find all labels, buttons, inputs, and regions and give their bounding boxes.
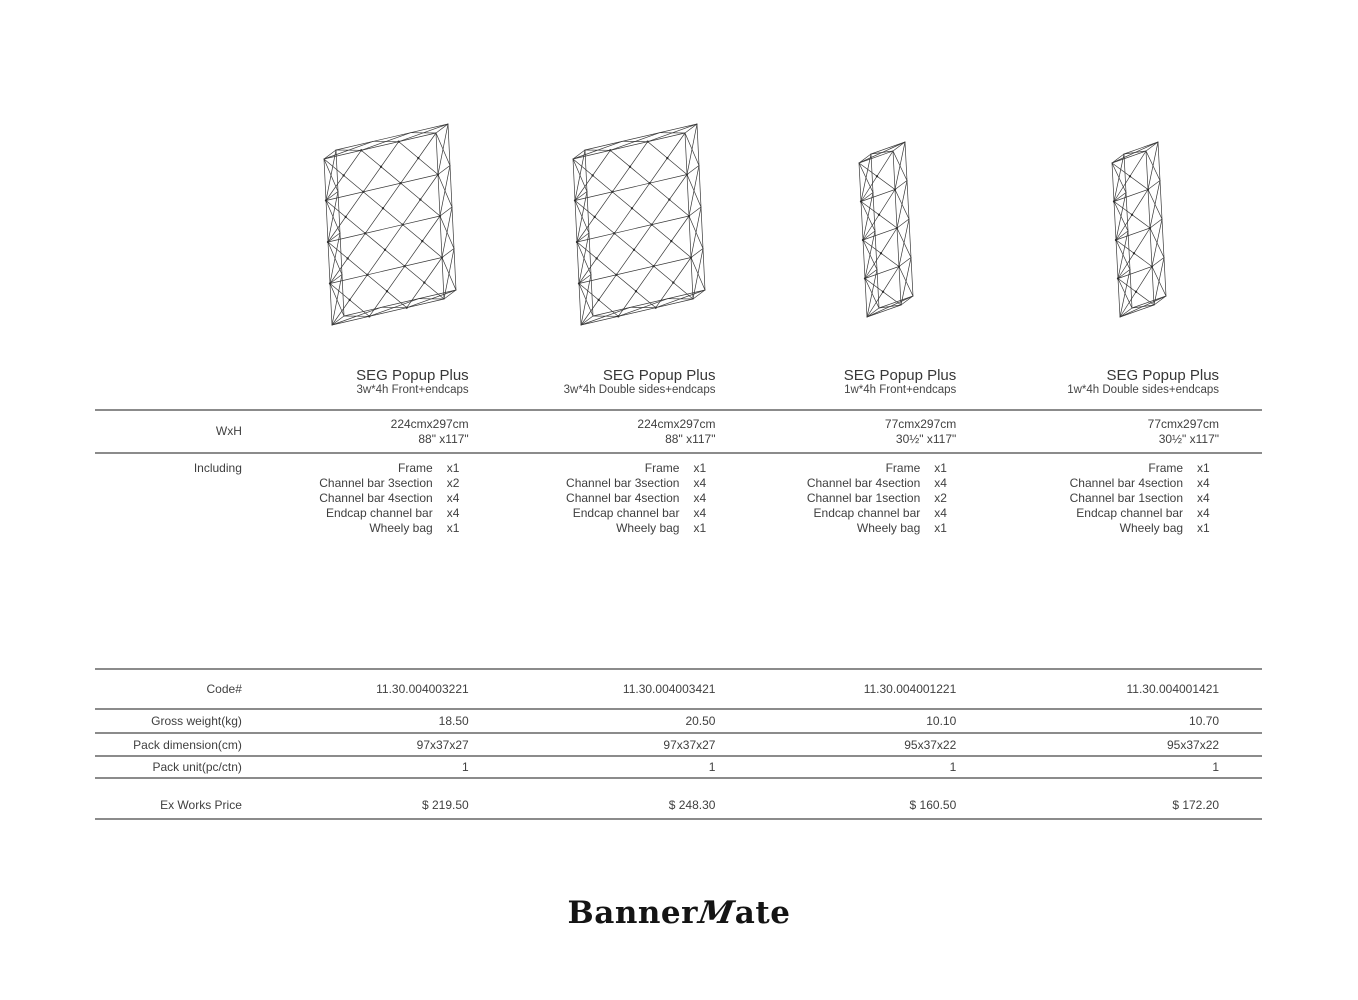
- size-in-value: 88" x117": [469, 432, 716, 447]
- including-item-qty: x4: [1197, 476, 1219, 491]
- including-item-qty: x1: [447, 461, 469, 476]
- including-item: Wheely bagx1: [956, 521, 1219, 536]
- pack-unit-value: 1: [715, 757, 956, 777]
- including-item: Endcap channel barx4: [469, 506, 716, 521]
- including-item-qty: x4: [447, 506, 469, 521]
- including-item-name: Channel bar 4section: [469, 491, 680, 506]
- including-item-qty: x2: [934, 491, 956, 506]
- including-item: Channel bar 4sectionx4: [956, 476, 1219, 491]
- including-list-1: Framex1 Channel bar 3sectionx2 Channel b…: [242, 454, 469, 668]
- including-item: Wheely bagx1: [715, 521, 956, 536]
- including-item: Channel bar 4sectionx4: [242, 491, 469, 506]
- including-item: Framex1: [956, 461, 1219, 476]
- size-values-3: 77cmx297cm 30½" x117": [715, 411, 956, 452]
- product-title: SEG Popup Plus: [469, 368, 716, 384]
- gross-weight-value: 20.50: [469, 710, 716, 732]
- gross-weight-value: 10.70: [956, 710, 1219, 732]
- including-item-qty: x4: [934, 476, 956, 491]
- size-cm-value: 77cmx297cm: [956, 417, 1219, 432]
- size-cm-value: 77cmx297cm: [715, 417, 956, 432]
- frame-drawing-1: [321, 123, 459, 333]
- including-list-4: Framex1 Channel bar 4sectionx4 Channel b…: [956, 454, 1219, 668]
- including-item: Endcap channel barx4: [956, 506, 1219, 521]
- frame-drawing-3: [854, 131, 918, 325]
- including-item-qty: x1: [693, 521, 715, 536]
- code-value: 11.30.004003221: [242, 670, 469, 708]
- row-pack-dimension: Pack dimension(cm) 97x37x27 97x37x27 95x…: [95, 734, 1262, 755]
- frame-drawing-4: [1107, 131, 1171, 325]
- including-item-name: Channel bar 1section: [956, 491, 1183, 506]
- including-item: Framex1: [469, 461, 716, 476]
- including-item-name: Wheely bag: [469, 521, 680, 536]
- including-item-name: Frame: [715, 461, 920, 476]
- including-item-name: Channel bar 3section: [469, 476, 680, 491]
- product-subtitle: 3w*4h Front+endcaps: [242, 384, 469, 397]
- including-item-name: Endcap channel bar: [715, 506, 920, 521]
- row-label-pack-dimension: Pack dimension(cm): [95, 734, 242, 755]
- including-item-name: Endcap channel bar: [469, 506, 680, 521]
- logo-text-suffix: ate: [735, 895, 791, 931]
- including-item-qty: x4: [447, 491, 469, 506]
- logo-stylized-m: M: [696, 895, 737, 931]
- pack-dimension-value: 95x37x22: [956, 734, 1219, 755]
- including-item-qty: x4: [693, 491, 715, 506]
- row-label-code: Code#: [95, 670, 242, 708]
- including-item: Endcap channel barx4: [715, 506, 956, 521]
- row-label-gross-weight: Gross weight(kg): [95, 710, 242, 732]
- pack-unit-value: 1: [956, 757, 1219, 777]
- including-item-qty: x1: [1197, 461, 1219, 476]
- size-in-value: 88" x117": [242, 432, 469, 447]
- including-item: Channel bar 1sectionx4: [956, 491, 1219, 506]
- including-item-qty: x4: [1197, 491, 1219, 506]
- size-in-value: 30½" x117": [715, 432, 956, 447]
- pack-unit-value: 1: [469, 757, 716, 777]
- including-item: Channel bar 3sectionx4: [469, 476, 716, 491]
- divider-rule: [95, 818, 1262, 820]
- including-item: Channel bar 4sectionx4: [469, 491, 716, 506]
- including-item-name: Channel bar 4section: [242, 491, 433, 506]
- row-code: Code# 11.30.004003221 11.30.004003421 11…: [95, 670, 1262, 708]
- product-title-block-4: SEG Popup Plus 1w*4h Double sides+endcap…: [956, 368, 1219, 397]
- pack-unit-value: 1: [242, 757, 469, 777]
- row-label-price: Ex Works Price: [95, 779, 242, 818]
- size-values-4: 77cmx297cm 30½" x117": [956, 411, 1219, 452]
- price-value: $ 219.50: [242, 779, 469, 818]
- product-title: SEG Popup Plus: [715, 368, 956, 384]
- product-title-block-3: SEG Popup Plus 1w*4h Front+endcaps: [715, 368, 956, 397]
- size-cm-value: 224cmx297cm: [242, 417, 469, 432]
- pack-dimension-value: 97x37x27: [469, 734, 716, 755]
- pack-dimension-value: 95x37x22: [715, 734, 956, 755]
- including-item-qty: x1: [447, 521, 469, 536]
- including-item: Framex1: [242, 461, 469, 476]
- including-item: Wheely bagx1: [469, 521, 716, 536]
- including-item-name: Frame: [956, 461, 1183, 476]
- title-spacer: [95, 368, 242, 397]
- spec-sheet-page: SEG Popup Plus 3w*4h Front+endcaps SEG P…: [0, 0, 1358, 1000]
- row-pack-unit: Pack unit(pc/ctn) 1 1 1 1: [95, 757, 1262, 777]
- including-item-qty: x4: [693, 506, 715, 521]
- price-value: $ 172.20: [956, 779, 1219, 818]
- product-title: SEG Popup Plus: [242, 368, 469, 384]
- product-subtitle: 3w*4h Double sides+endcaps: [469, 384, 716, 397]
- including-item-qty: x2: [447, 476, 469, 491]
- price-value: $ 248.30: [469, 779, 716, 818]
- including-item-qty: x1: [693, 461, 715, 476]
- row-label-wxh: WxH: [95, 411, 242, 452]
- including-item-name: Frame: [469, 461, 680, 476]
- including-item-qty: x4: [1197, 506, 1219, 521]
- product-titles-row: SEG Popup Plus 3w*4h Front+endcaps SEG P…: [95, 368, 1262, 397]
- including-item-qty: x1: [934, 521, 956, 536]
- including-item-name: Wheely bag: [956, 521, 1183, 536]
- frame-drawing-2: [570, 123, 708, 333]
- row-label-pack-unit: Pack unit(pc/ctn): [95, 757, 242, 777]
- size-values-1: 224cmx297cm 88" x117": [242, 411, 469, 452]
- gross-weight-value: 18.50: [242, 710, 469, 732]
- size-in-value: 30½" x117": [956, 432, 1219, 447]
- code-value: 11.30.004003421: [469, 670, 716, 708]
- including-item-name: Channel bar 4section: [956, 476, 1183, 491]
- brand-logo: BannerMate: [0, 895, 1358, 931]
- price-value: $ 160.50: [715, 779, 956, 818]
- including-item-name: Channel bar 3section: [242, 476, 433, 491]
- pack-dimension-value: 97x37x27: [242, 734, 469, 755]
- logo-text-prefix: Banner: [568, 895, 698, 931]
- spec-table: WxH 224cmx297cm 88" x117" 224cmx297cm 88…: [95, 409, 1262, 820]
- including-item: Channel bar 3sectionx2: [242, 476, 469, 491]
- row-gross-weight: Gross weight(kg) 18.50 20.50 10.10 10.70: [95, 710, 1262, 732]
- product-title-block-1: SEG Popup Plus 3w*4h Front+endcaps: [242, 368, 469, 397]
- including-item-qty: x1: [1197, 521, 1219, 536]
- including-item-name: Wheely bag: [242, 521, 433, 536]
- including-item: Endcap channel barx4: [242, 506, 469, 521]
- code-value: 11.30.004001221: [715, 670, 956, 708]
- including-item: Channel bar 1sectionx2: [715, 491, 956, 506]
- size-values-2: 224cmx297cm 88" x117": [469, 411, 716, 452]
- product-subtitle: 1w*4h Double sides+endcaps: [956, 384, 1219, 397]
- product-title: SEG Popup Plus: [956, 368, 1219, 384]
- including-item: Channel bar 4sectionx4: [715, 476, 956, 491]
- row-including: Including Framex1 Channel bar 3sectionx2…: [95, 454, 1262, 668]
- including-item-qty: x4: [693, 476, 715, 491]
- including-item-name: Channel bar 1section: [715, 491, 920, 506]
- including-item-name: Endcap channel bar: [956, 506, 1183, 521]
- product-title-block-2: SEG Popup Plus 3w*4h Double sides+endcap…: [469, 368, 716, 397]
- including-item-qty: x4: [934, 506, 956, 521]
- row-wxh: WxH 224cmx297cm 88" x117" 224cmx297cm 88…: [95, 411, 1262, 452]
- product-subtitle: 1w*4h Front+endcaps: [715, 384, 956, 397]
- code-value: 11.30.004001421: [956, 670, 1219, 708]
- including-item-name: Channel bar 4section: [715, 476, 920, 491]
- row-label-including: Including: [95, 454, 242, 668]
- including-item: Wheely bagx1: [242, 521, 469, 536]
- size-cm-value: 224cmx297cm: [469, 417, 716, 432]
- gross-weight-value: 10.10: [715, 710, 956, 732]
- including-item-name: Endcap channel bar: [242, 506, 433, 521]
- including-list-3: Framex1 Channel bar 4sectionx4 Channel b…: [715, 454, 956, 668]
- including-item-name: Wheely bag: [715, 521, 920, 536]
- including-item-name: Frame: [242, 461, 433, 476]
- including-list-2: Framex1 Channel bar 3sectionx4 Channel b…: [469, 454, 716, 668]
- including-item: Framex1: [715, 461, 956, 476]
- including-item-qty: x1: [934, 461, 956, 476]
- row-price: Ex Works Price $ 219.50 $ 248.30 $ 160.5…: [95, 779, 1262, 818]
